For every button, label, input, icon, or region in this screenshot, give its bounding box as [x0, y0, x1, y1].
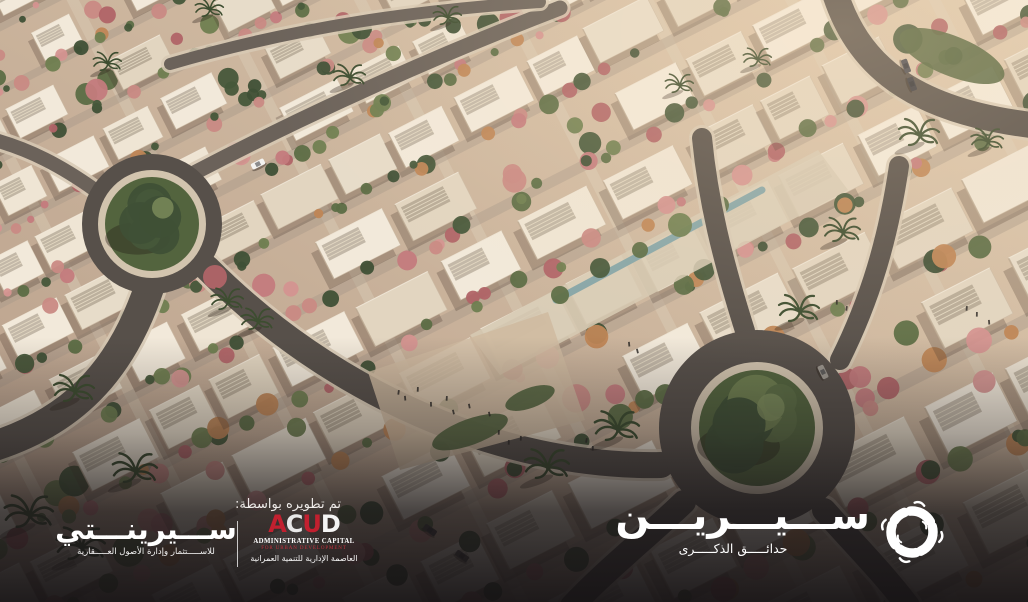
acud-letter: C	[286, 510, 303, 538]
serenity-tagline: للاســـــتثمار وإدارة الأصول العـــــقار…	[40, 547, 252, 557]
acud-name-en: ADMINISTRATIVE CAPITAL	[250, 538, 358, 545]
sereen-tagline: حدائـــــق الذكـــــرى	[612, 541, 854, 556]
logo-divider	[237, 521, 238, 567]
acud-letters: ACUD	[250, 511, 358, 537]
sereen-logo: ســـيـــريـــن حدائـــــق الذكـــــرى	[628, 492, 870, 556]
acud-letter: D	[321, 510, 340, 538]
acud-name-ar: العاصمة الإدارية للتنمية العمرانية	[250, 554, 358, 563]
sereen-logo-text: ســـيـــريـــن	[628, 492, 870, 540]
acud-letter: A	[268, 510, 286, 538]
serenity-logo: ســـيرينـــتي للاســـــتثمار وإدارة الأص…	[40, 513, 252, 557]
serenity-logo-text: ســـيرينـــتي	[40, 513, 252, 546]
acud-logo: ACUD ADMINISTRATIVE CAPITAL FOR URBAN DE…	[250, 511, 358, 563]
poster: تم تطويره بواسطة: ســـيرينـــتي للاســــ…	[0, 0, 1028, 602]
acud-letter: U	[302, 510, 321, 538]
acud-sub-en: FOR URBAN DEVELOPMENT	[250, 546, 358, 551]
sereen-emblem-icon	[876, 496, 948, 568]
